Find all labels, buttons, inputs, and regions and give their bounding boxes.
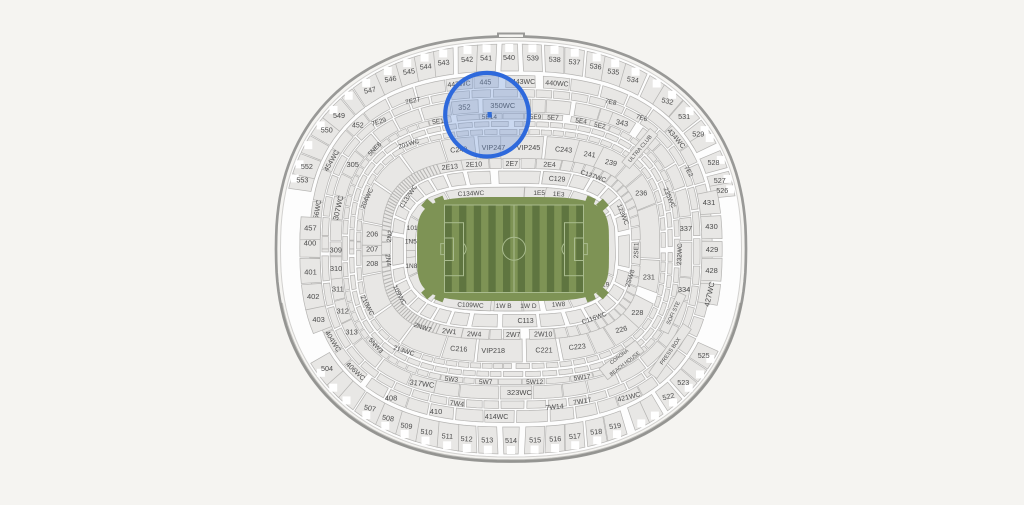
svg-text:541: 541 (480, 54, 492, 63)
svg-text:550: 550 (321, 125, 333, 134)
svg-text:5W12: 5W12 (526, 379, 543, 386)
svg-text:400: 400 (304, 239, 317, 248)
svg-text:323WC: 323WC (507, 388, 533, 397)
svg-text:5E7: 5E7 (547, 114, 559, 122)
svg-text:2SE1: 2SE1 (633, 242, 640, 258)
svg-text:1N8: 1N8 (405, 263, 417, 270)
svg-text:2N4: 2N4 (384, 254, 392, 267)
svg-text:410: 410 (430, 407, 443, 416)
svg-text:1W D: 1W D (520, 303, 537, 310)
svg-text:529: 529 (692, 130, 704, 139)
svg-text:C243: C243 (555, 144, 573, 154)
svg-text:429: 429 (706, 245, 719, 254)
svg-text:543: 543 (437, 58, 450, 68)
svg-text:337: 337 (680, 224, 693, 233)
svg-text:C134WC: C134WC (458, 190, 485, 198)
svg-text:241: 241 (583, 149, 596, 160)
svg-text:544: 544 (419, 61, 432, 71)
svg-text:513: 513 (481, 436, 493, 445)
svg-text:305: 305 (346, 160, 359, 169)
svg-text:309: 309 (330, 246, 343, 255)
svg-text:402: 402 (307, 292, 320, 301)
svg-text:207: 207 (366, 244, 378, 253)
svg-text:428: 428 (705, 266, 718, 275)
svg-text:C129: C129 (548, 176, 565, 184)
svg-text:542: 542 (461, 55, 473, 65)
svg-text:228: 228 (631, 308, 643, 317)
svg-text:313: 313 (345, 327, 358, 336)
svg-text:516: 516 (549, 434, 561, 444)
svg-text:528: 528 (708, 158, 720, 167)
svg-text:525: 525 (698, 351, 710, 360)
svg-text:403: 403 (312, 315, 325, 324)
svg-text:2E4: 2E4 (543, 162, 556, 170)
svg-text:452: 452 (352, 122, 364, 129)
svg-text:5E9: 5E9 (530, 114, 542, 121)
svg-text:231: 231 (643, 272, 655, 281)
svg-text:515: 515 (529, 436, 541, 445)
svg-text:537: 537 (568, 57, 581, 67)
svg-text:526: 526 (716, 186, 728, 195)
svg-text:414WC: 414WC (485, 414, 508, 421)
svg-text:312: 312 (336, 307, 349, 316)
svg-text:510: 510 (420, 427, 433, 437)
svg-text:236: 236 (635, 188, 647, 197)
svg-text:535: 535 (607, 66, 620, 76)
svg-text:1E5: 1E5 (533, 190, 545, 197)
svg-text:2W7: 2W7 (506, 332, 521, 339)
svg-text:1N5: 1N5 (405, 238, 417, 245)
svg-text:430: 430 (705, 222, 718, 231)
svg-text:311: 311 (332, 285, 344, 294)
svg-text:C216: C216 (450, 344, 468, 354)
svg-text:512: 512 (460, 434, 472, 444)
svg-text:5W3: 5W3 (444, 376, 458, 384)
svg-text:545: 545 (402, 66, 415, 76)
svg-text:206: 206 (366, 230, 378, 239)
svg-text:VIP245: VIP245 (517, 143, 541, 152)
svg-text:2W10: 2W10 (534, 332, 552, 339)
svg-text:457: 457 (304, 223, 317, 232)
svg-text:549: 549 (333, 111, 345, 120)
svg-text:C113: C113 (517, 318, 533, 325)
svg-text:552: 552 (301, 162, 313, 171)
svg-text:310: 310 (330, 264, 343, 273)
svg-text:232WC: 232WC (676, 243, 684, 265)
svg-text:514: 514 (505, 436, 517, 445)
svg-text:2W1: 2W1 (442, 328, 457, 336)
svg-text:VIP218: VIP218 (481, 346, 505, 355)
svg-text:C223: C223 (568, 341, 586, 352)
svg-text:540: 540 (503, 53, 515, 62)
svg-text:1W8: 1W8 (552, 301, 566, 309)
svg-text:504: 504 (321, 364, 333, 373)
svg-text:536: 536 (589, 61, 602, 71)
svg-text:C221: C221 (535, 346, 552, 355)
svg-text:2W4: 2W4 (467, 331, 482, 339)
svg-text:527: 527 (714, 176, 726, 185)
svg-text:208: 208 (366, 259, 378, 268)
svg-text:553: 553 (296, 175, 308, 184)
svg-text:538: 538 (549, 55, 561, 65)
svg-text:2E10: 2E10 (466, 161, 483, 169)
svg-text:1W B: 1W B (496, 303, 512, 310)
svg-text:511: 511 (441, 431, 453, 441)
svg-text:539: 539 (527, 53, 539, 62)
svg-text:517: 517 (569, 431, 582, 441)
svg-text:5W7: 5W7 (479, 379, 493, 386)
svg-text:518: 518 (590, 427, 603, 437)
svg-text:401: 401 (304, 267, 317, 276)
svg-text:531: 531 (678, 112, 690, 121)
svg-text:2E7: 2E7 (506, 161, 519, 168)
svg-text:C109WC: C109WC (457, 302, 484, 310)
svg-text:408: 408 (385, 394, 398, 403)
svg-text:509: 509 (400, 421, 413, 432)
svg-text:519: 519 (609, 421, 622, 432)
svg-text:101: 101 (407, 225, 418, 232)
svg-text:5E4: 5E4 (575, 117, 588, 125)
svg-text:523: 523 (677, 378, 689, 387)
svg-text:431: 431 (703, 198, 716, 207)
